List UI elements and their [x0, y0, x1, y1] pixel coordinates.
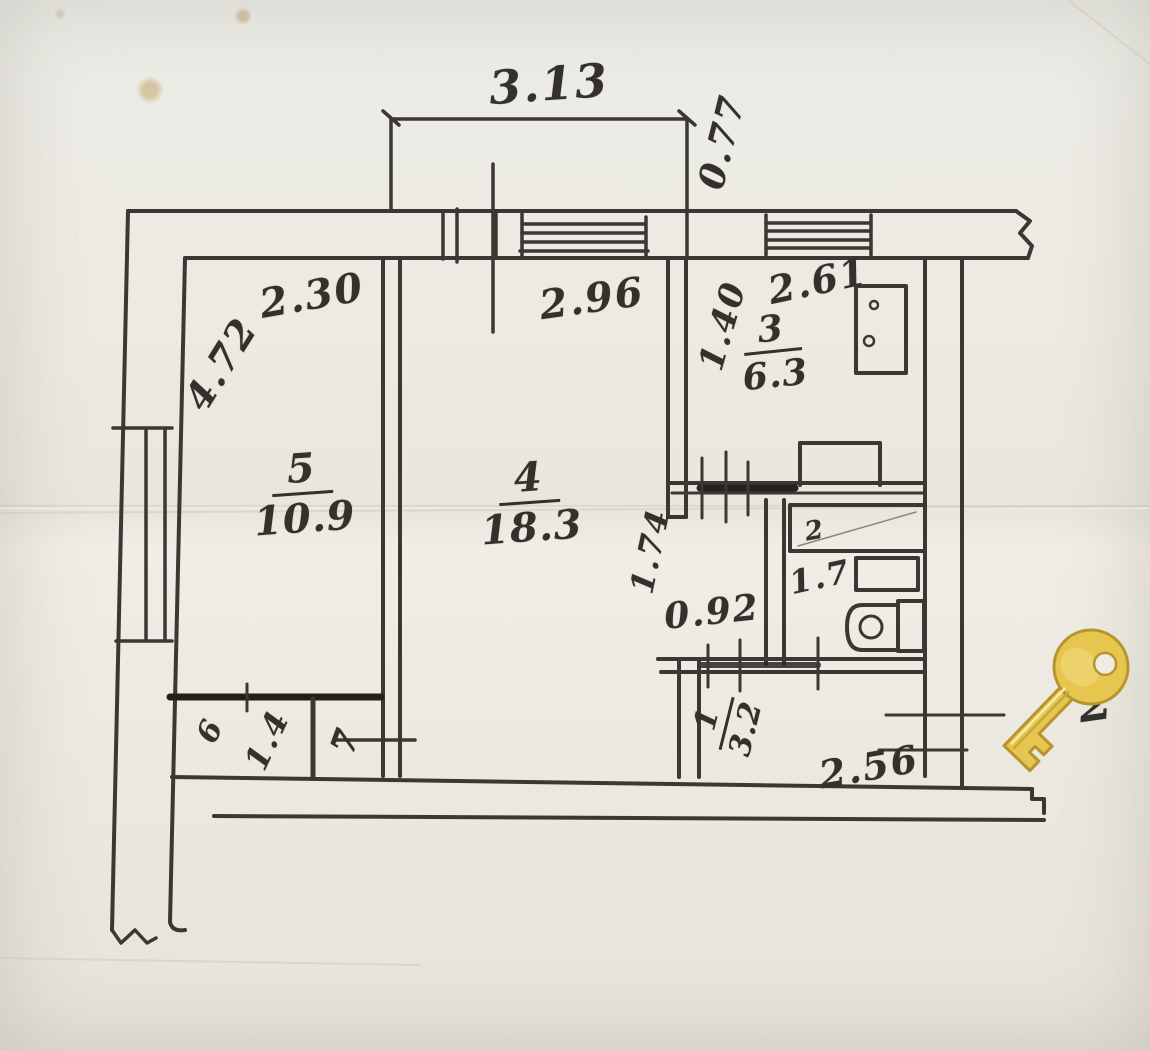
room3-label: 3 6.3: [736, 308, 810, 396]
room4-label: 4 18.3: [476, 455, 583, 552]
room3-number: 3: [740, 308, 802, 356]
room5-number: 5: [270, 447, 334, 497]
room5-label: 5 10.9: [249, 446, 356, 543]
dimension-doorway: 0.92: [663, 589, 762, 635]
room3-area: 6.3: [740, 350, 809, 397]
room4-number: 4: [497, 456, 561, 506]
floorplan-scan: 3.13 0.77 2.30 4.72 2.96 2.61 1.40 1.74 …: [0, 0, 1150, 1050]
bathroom-walls: [766, 500, 784, 664]
vent-shaft-icon: [856, 286, 906, 373]
wall-kitchen-hall: [668, 452, 925, 522]
room4-area: 18.3: [479, 500, 583, 551]
toilet-icon: [847, 601, 924, 651]
wall-room4-right: [668, 258, 686, 517]
room2-number: 2: [803, 516, 827, 545]
stove-icon: [800, 443, 880, 485]
sink-icon: [856, 558, 918, 590]
partial-digit: 2: [1075, 678, 1117, 730]
dimension-balcony-width: 3.13: [488, 57, 611, 111]
window-room4: [496, 214, 648, 258]
room5-area: 10.9: [252, 491, 356, 542]
